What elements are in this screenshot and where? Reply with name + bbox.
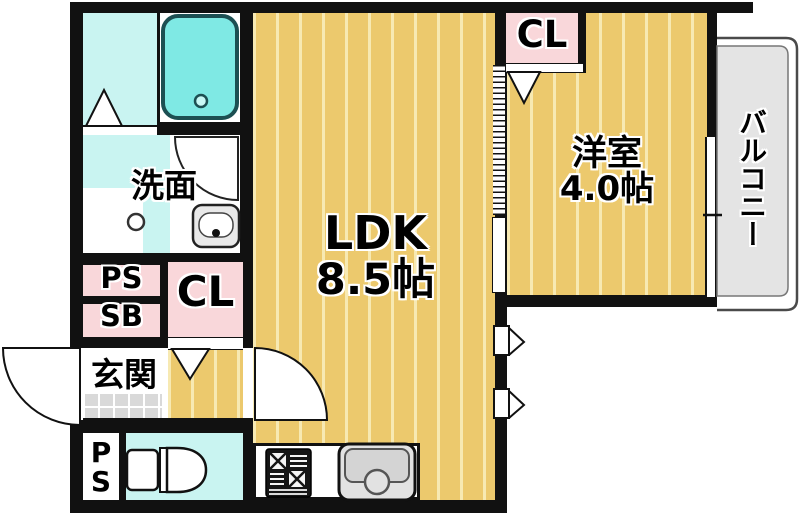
- entrance-label: 玄関: [82, 358, 166, 392]
- kitchen-sink-icon: [339, 444, 415, 500]
- closet-bedroom-label: CL: [506, 16, 578, 54]
- bathroom-folding-door-icon: [86, 90, 122, 126]
- toilet-icon: [127, 448, 206, 492]
- pipe-space-lower-label: PS: [89, 438, 113, 496]
- window-open-mark-icon: [509, 391, 524, 418]
- window-open-mark-icon: [509, 328, 524, 355]
- ldk-door-arc-icon: [255, 348, 327, 420]
- western-room-name: 洋室: [528, 136, 686, 172]
- ldk-room-size: 8.5帖: [278, 258, 473, 303]
- gas-stove-icon: [266, 449, 311, 497]
- closet-bedroom-door-icon: [508, 72, 540, 103]
- closet-hall-door-icon: [172, 349, 209, 379]
- entrance-door-arc-icon: [3, 348, 80, 425]
- balcony-label: バルコニー: [737, 88, 766, 268]
- washer-drain-icon: [128, 214, 144, 230]
- washbasin-icon: [193, 205, 239, 247]
- bathtub-drain-icon: [195, 95, 207, 107]
- ldk-room-name: LDK: [278, 210, 473, 258]
- closet-hall-label: CL: [168, 270, 243, 314]
- western-room-size: 4.0帖: [528, 172, 686, 207]
- pipe-space-upper-label: PS: [83, 263, 160, 293]
- washroom-label: 洗面: [118, 169, 210, 203]
- shoe-box-label: SB: [83, 301, 160, 331]
- floor-plan: LDK 8.5帖 洋室 4.0帖 洗面 玄関 バルコニー CL CL PS SB…: [0, 0, 800, 515]
- ldk-room-label: LDK 8.5帖: [278, 210, 473, 303]
- western-room-label: 洋室 4.0帖: [528, 136, 686, 208]
